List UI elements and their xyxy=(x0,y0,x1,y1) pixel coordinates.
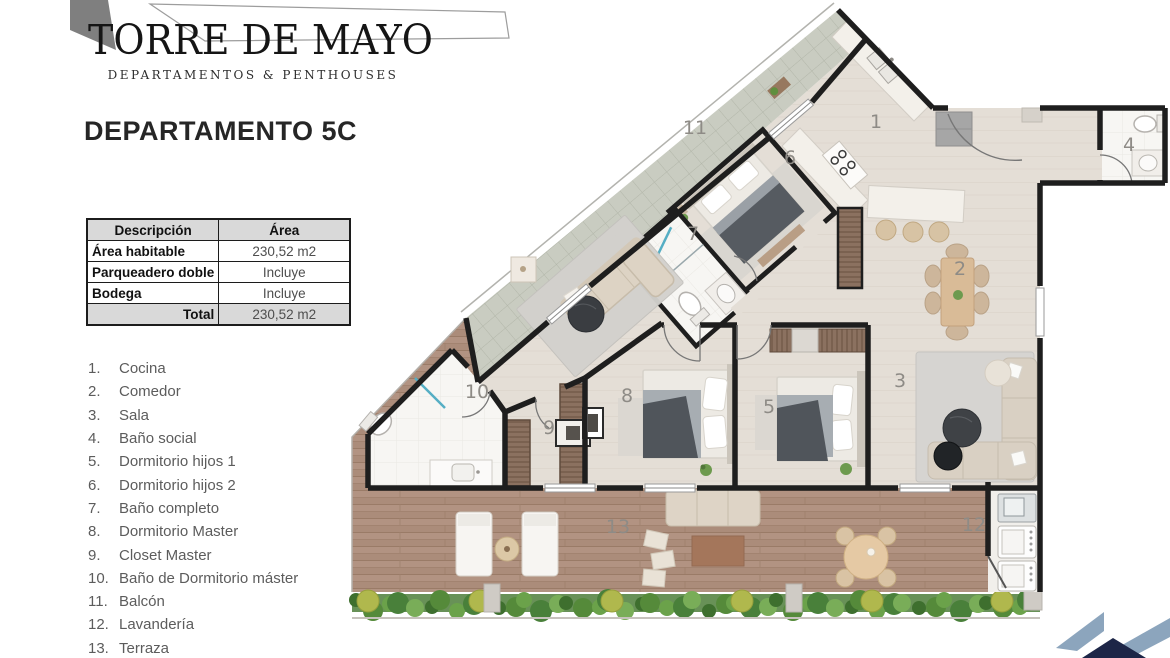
legend-item: 6.Dormitorio hijos 2 xyxy=(88,473,298,496)
area-row-value: 230,52 m2 xyxy=(219,241,351,262)
legend-label: Terraza xyxy=(119,640,169,657)
room-number-6: 6 xyxy=(784,147,796,169)
legend-label: Cocina xyxy=(119,360,166,377)
legend-label: Sala xyxy=(119,407,149,424)
living-room xyxy=(916,352,1037,482)
area-row-value: Incluye xyxy=(219,283,351,304)
page-title: DEPARTAMENTO 5C xyxy=(84,116,357,147)
legend-item: 3.Sala xyxy=(88,404,298,427)
legend-label: Dormitorio hijos 2 xyxy=(119,477,236,494)
laundry xyxy=(988,488,1040,592)
room-number-5: 5 xyxy=(763,396,775,418)
legend-item: 1.Cocina xyxy=(88,357,298,380)
legend-number: 9. xyxy=(88,547,119,564)
room-number-7: 7 xyxy=(687,223,699,245)
legend-item: 13.Terraza xyxy=(88,637,298,658)
legend-number: 13. xyxy=(88,640,119,657)
room-number-12: 12 xyxy=(962,514,986,536)
legend-number: 3. xyxy=(88,407,119,424)
legend-item: 8.Dormitorio Master xyxy=(88,520,298,543)
legend-item: 12.Lavandería xyxy=(88,613,298,636)
legend-number: 7. xyxy=(88,500,119,517)
room-legend: 1.Cocina2.Comedor3.Sala4.Baño social5.Do… xyxy=(88,357,298,658)
room-number-8: 8 xyxy=(621,385,633,407)
legend-label: Baño de Dormitorio máster xyxy=(119,570,298,587)
legend-item: 2.Comedor xyxy=(88,380,298,403)
area-row-label: Área habitable xyxy=(87,241,219,262)
area-table-header-area: Área xyxy=(219,219,351,241)
room-number-4: 4 xyxy=(1123,134,1135,156)
total-value: 230,52 m2 xyxy=(219,304,351,326)
area-table-header-desc: Descripción xyxy=(87,219,219,241)
legend-label: Baño completo xyxy=(119,500,219,517)
legend-label: Closet Master xyxy=(119,547,212,564)
room-number-13: 13 xyxy=(606,516,630,538)
legend-number: 4. xyxy=(88,430,119,447)
legend-number: 12. xyxy=(88,616,119,633)
legend-item: 7.Baño completo xyxy=(88,497,298,520)
area-table-total-row: Total 230,52 m2 xyxy=(87,304,350,326)
legend-label: Balcón xyxy=(119,593,165,610)
legend-number: 1. xyxy=(88,360,119,377)
room-number-10: 10 xyxy=(465,381,489,403)
legend-label: Baño social xyxy=(119,430,197,447)
legend-label: Dormitorio Master xyxy=(119,523,238,540)
area-row-label: Bodega xyxy=(87,283,219,304)
brochure-page: 12345678910111213 TORRE DE MAYO DEPARTAM… xyxy=(0,0,1170,658)
area-row-label: Parqueadero doble xyxy=(87,262,219,283)
room-number-1: 1 xyxy=(870,111,882,133)
room-number-9: 9 xyxy=(543,417,555,439)
legend-item: 10.Baño de Dormitorio máster xyxy=(88,567,298,590)
brand-tagline: DEPARTAMENTOS & PENTHOUSES xyxy=(88,68,418,82)
legend-item: 9.Closet Master xyxy=(88,543,298,566)
legend-label: Lavandería xyxy=(119,616,194,633)
area-table-row: BodegaIncluye xyxy=(87,283,350,304)
room-number-2: 2 xyxy=(954,258,966,280)
legend-item: 5.Dormitorio hijos 1 xyxy=(88,450,298,473)
legend-item: 4.Baño social xyxy=(88,427,298,450)
total-label: Total xyxy=(87,304,219,326)
legend-number: 8. xyxy=(88,523,119,540)
room-number-3: 3 xyxy=(894,370,906,392)
area-table-row: Área habitable230,52 m2 xyxy=(87,241,350,262)
legend-label: Comedor xyxy=(119,383,181,400)
legend-number: 5. xyxy=(88,453,119,470)
area-table-row: Parqueadero dobleIncluye xyxy=(87,262,350,283)
area-table: Descripción Área Área habitable230,52 m2… xyxy=(86,218,351,326)
legend-number: 6. xyxy=(88,477,119,494)
area-row-value: Incluye xyxy=(219,262,351,283)
legend-number: 10. xyxy=(88,570,119,587)
legend-number: 11. xyxy=(88,593,119,610)
brand-mark xyxy=(1056,612,1170,658)
legend-label: Dormitorio hijos 1 xyxy=(119,453,236,470)
legend-number: 2. xyxy=(88,383,119,400)
legend-item: 11.Balcón xyxy=(88,590,298,613)
brand-name: TORRE DE MAYO xyxy=(88,16,418,64)
room-number-11: 11 xyxy=(683,117,707,139)
